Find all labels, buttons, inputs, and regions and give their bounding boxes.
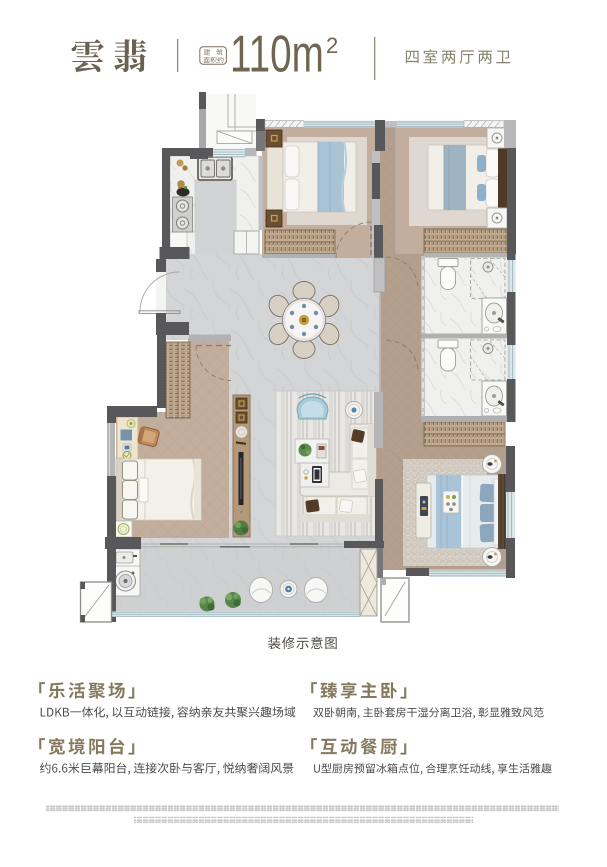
svg-text:110m: 110m (230, 25, 324, 83)
svg-text:2: 2 (326, 33, 338, 58)
